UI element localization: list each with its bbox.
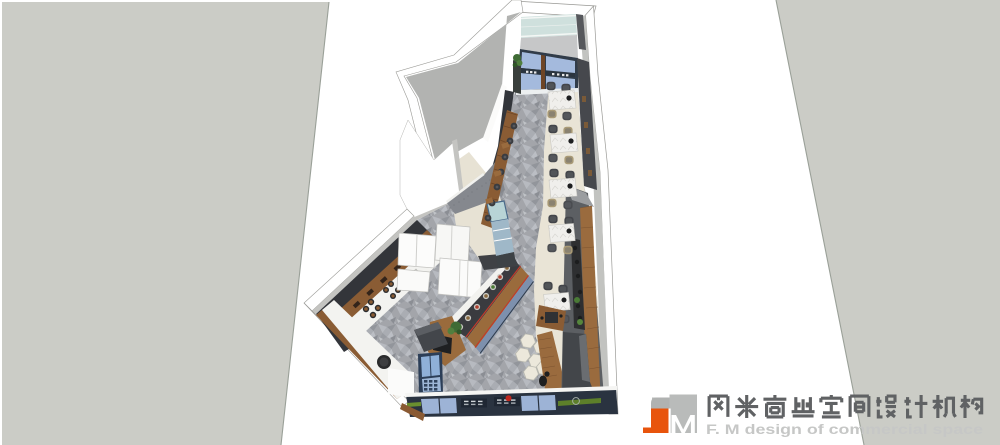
svg-text:F. M design of commercial spac: F. M design of commercial space bbox=[706, 422, 984, 437]
